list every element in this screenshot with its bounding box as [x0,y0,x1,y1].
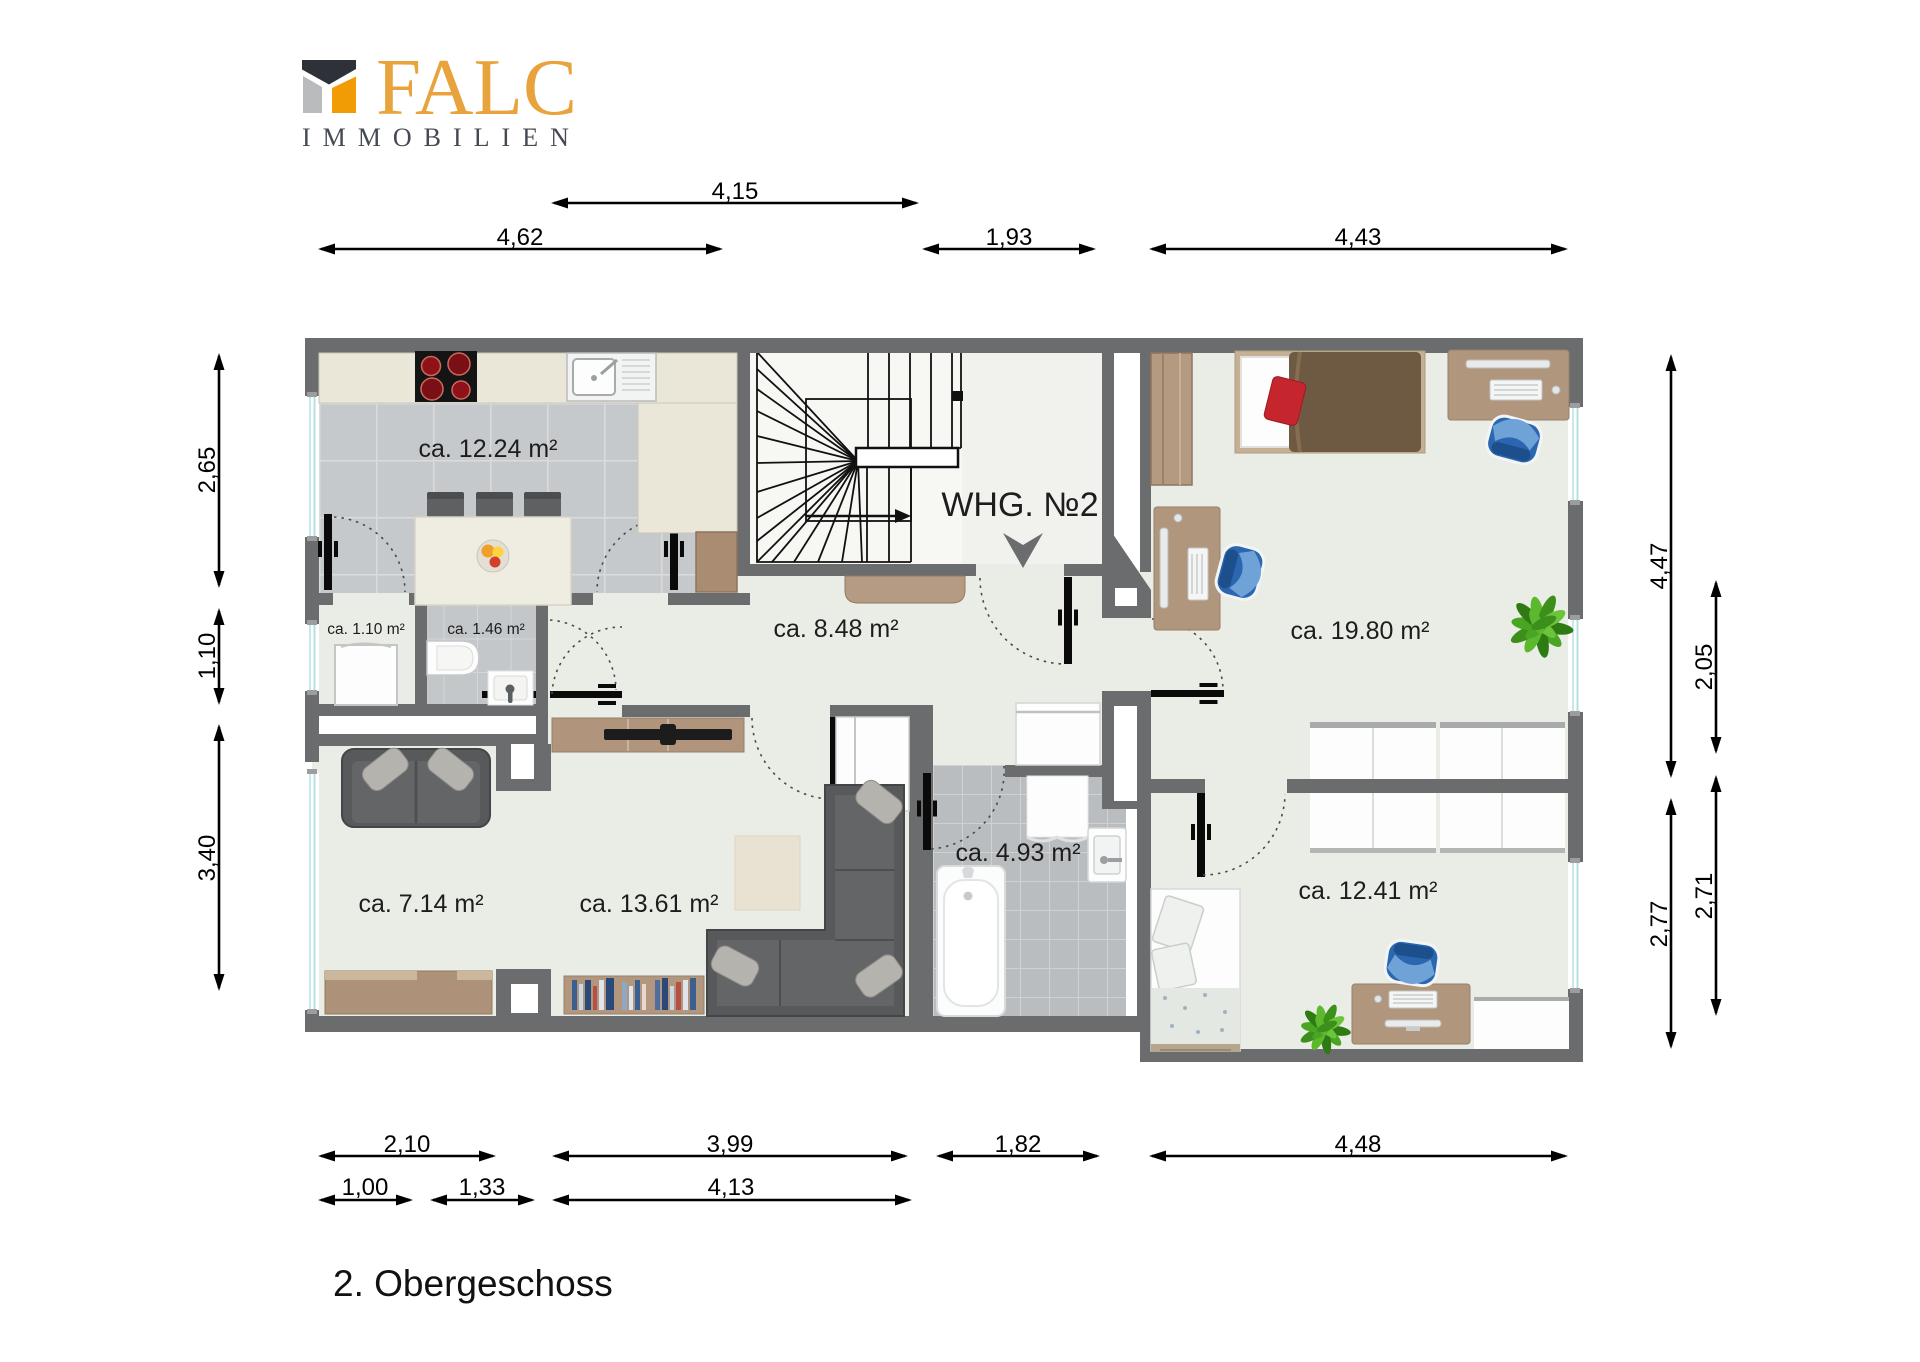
svg-text:ca. 19.80 m²: ca. 19.80 m² [1291,617,1430,645]
svg-text:4,62: 4,62 [497,224,544,251]
svg-text:1,00: 1,00 [342,1174,389,1201]
svg-text:FALC: FALC [376,42,577,132]
svg-text:2,77: 2,77 [1646,901,1673,948]
svg-text:ca. 12.41 m²: ca. 12.41 m² [1299,877,1438,905]
svg-text:4,43: 4,43 [1335,224,1382,251]
svg-text:ca. 8.48 m²: ca. 8.48 m² [773,615,898,643]
svg-text:2,05: 2,05 [1691,644,1718,691]
svg-text:2,10: 2,10 [384,1131,431,1158]
svg-text:1,82: 1,82 [995,1131,1042,1158]
svg-text:WHG. №2: WHG. №2 [941,486,1098,524]
svg-text:ca. 12.24 m²: ca. 12.24 m² [419,435,558,463]
svg-text:1,33: 1,33 [459,1174,506,1201]
svg-text:4,48: 4,48 [1335,1131,1382,1158]
svg-text:2,65: 2,65 [194,447,221,494]
svg-text:ca. 1.46 m²: ca. 1.46 m² [447,621,525,638]
svg-text:IMMOBILIEN: IMMOBILIEN [302,123,581,152]
svg-text:1,10: 1,10 [194,633,221,680]
svg-text:1,93: 1,93 [986,224,1033,251]
svg-text:3,40: 3,40 [194,835,221,882]
svg-text:ca. 7.14 m²: ca. 7.14 m² [358,890,483,918]
svg-text:4,47: 4,47 [1646,543,1673,590]
svg-text:3,99: 3,99 [707,1131,754,1158]
svg-text:2,71: 2,71 [1691,873,1718,920]
svg-text:ca. 1.10 m²: ca. 1.10 m² [327,621,405,638]
svg-text:4,15: 4,15 [712,178,759,205]
svg-text:4,13: 4,13 [708,1174,755,1201]
svg-text:ca. 13.61 m²: ca. 13.61 m² [580,890,719,918]
svg-text:2. Obergeschoss: 2. Obergeschoss [333,1263,613,1304]
svg-text:ca. 4.93 m²: ca. 4.93 m² [955,839,1080,867]
